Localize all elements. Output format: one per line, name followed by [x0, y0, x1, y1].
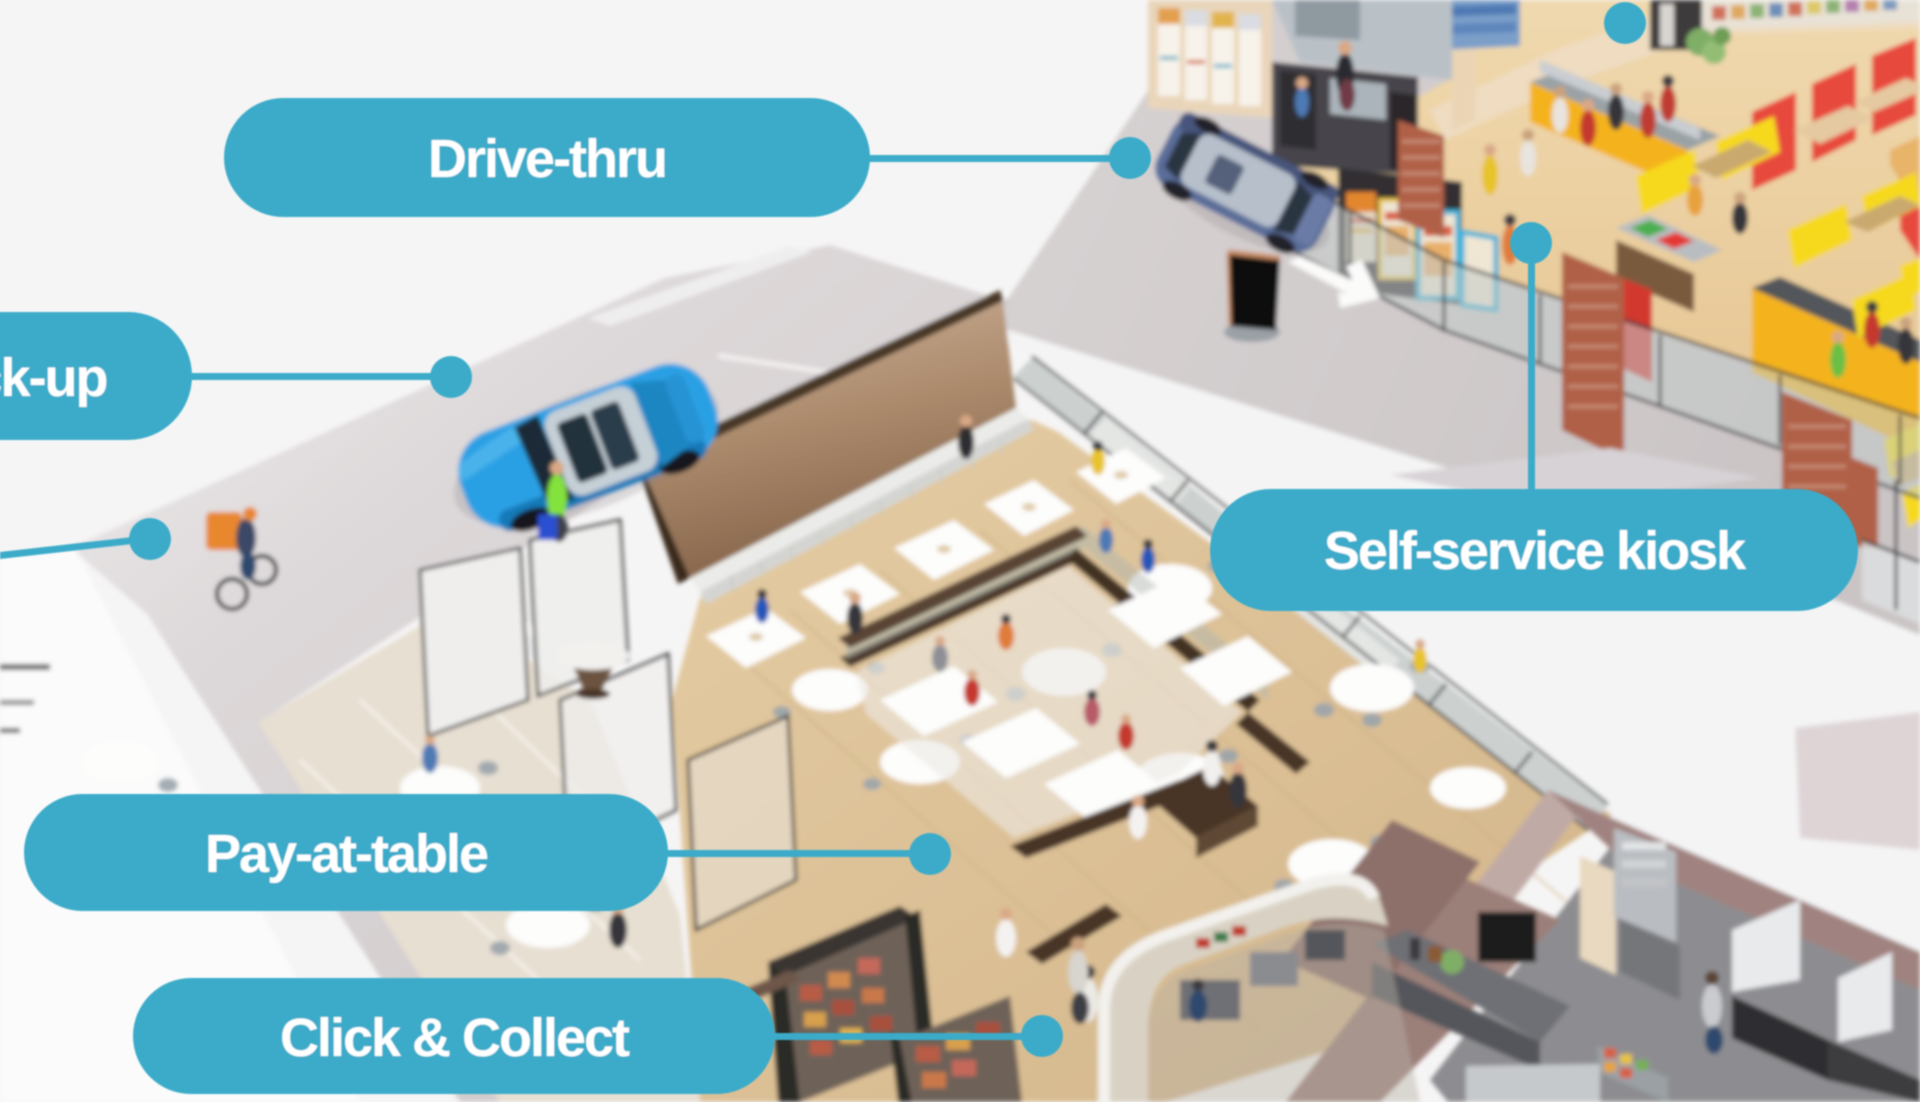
svg-text:Click & Collect: Click & Collect	[280, 1008, 630, 1068]
svg-text:Pay-at-table: Pay-at-table	[205, 824, 488, 884]
svg-text:Pick-up: Pick-up	[0, 348, 107, 408]
svg-text:Drive-thru: Drive-thru	[428, 129, 666, 189]
svg-text:Self-service kiosk: Self-service kiosk	[1324, 521, 1747, 581]
